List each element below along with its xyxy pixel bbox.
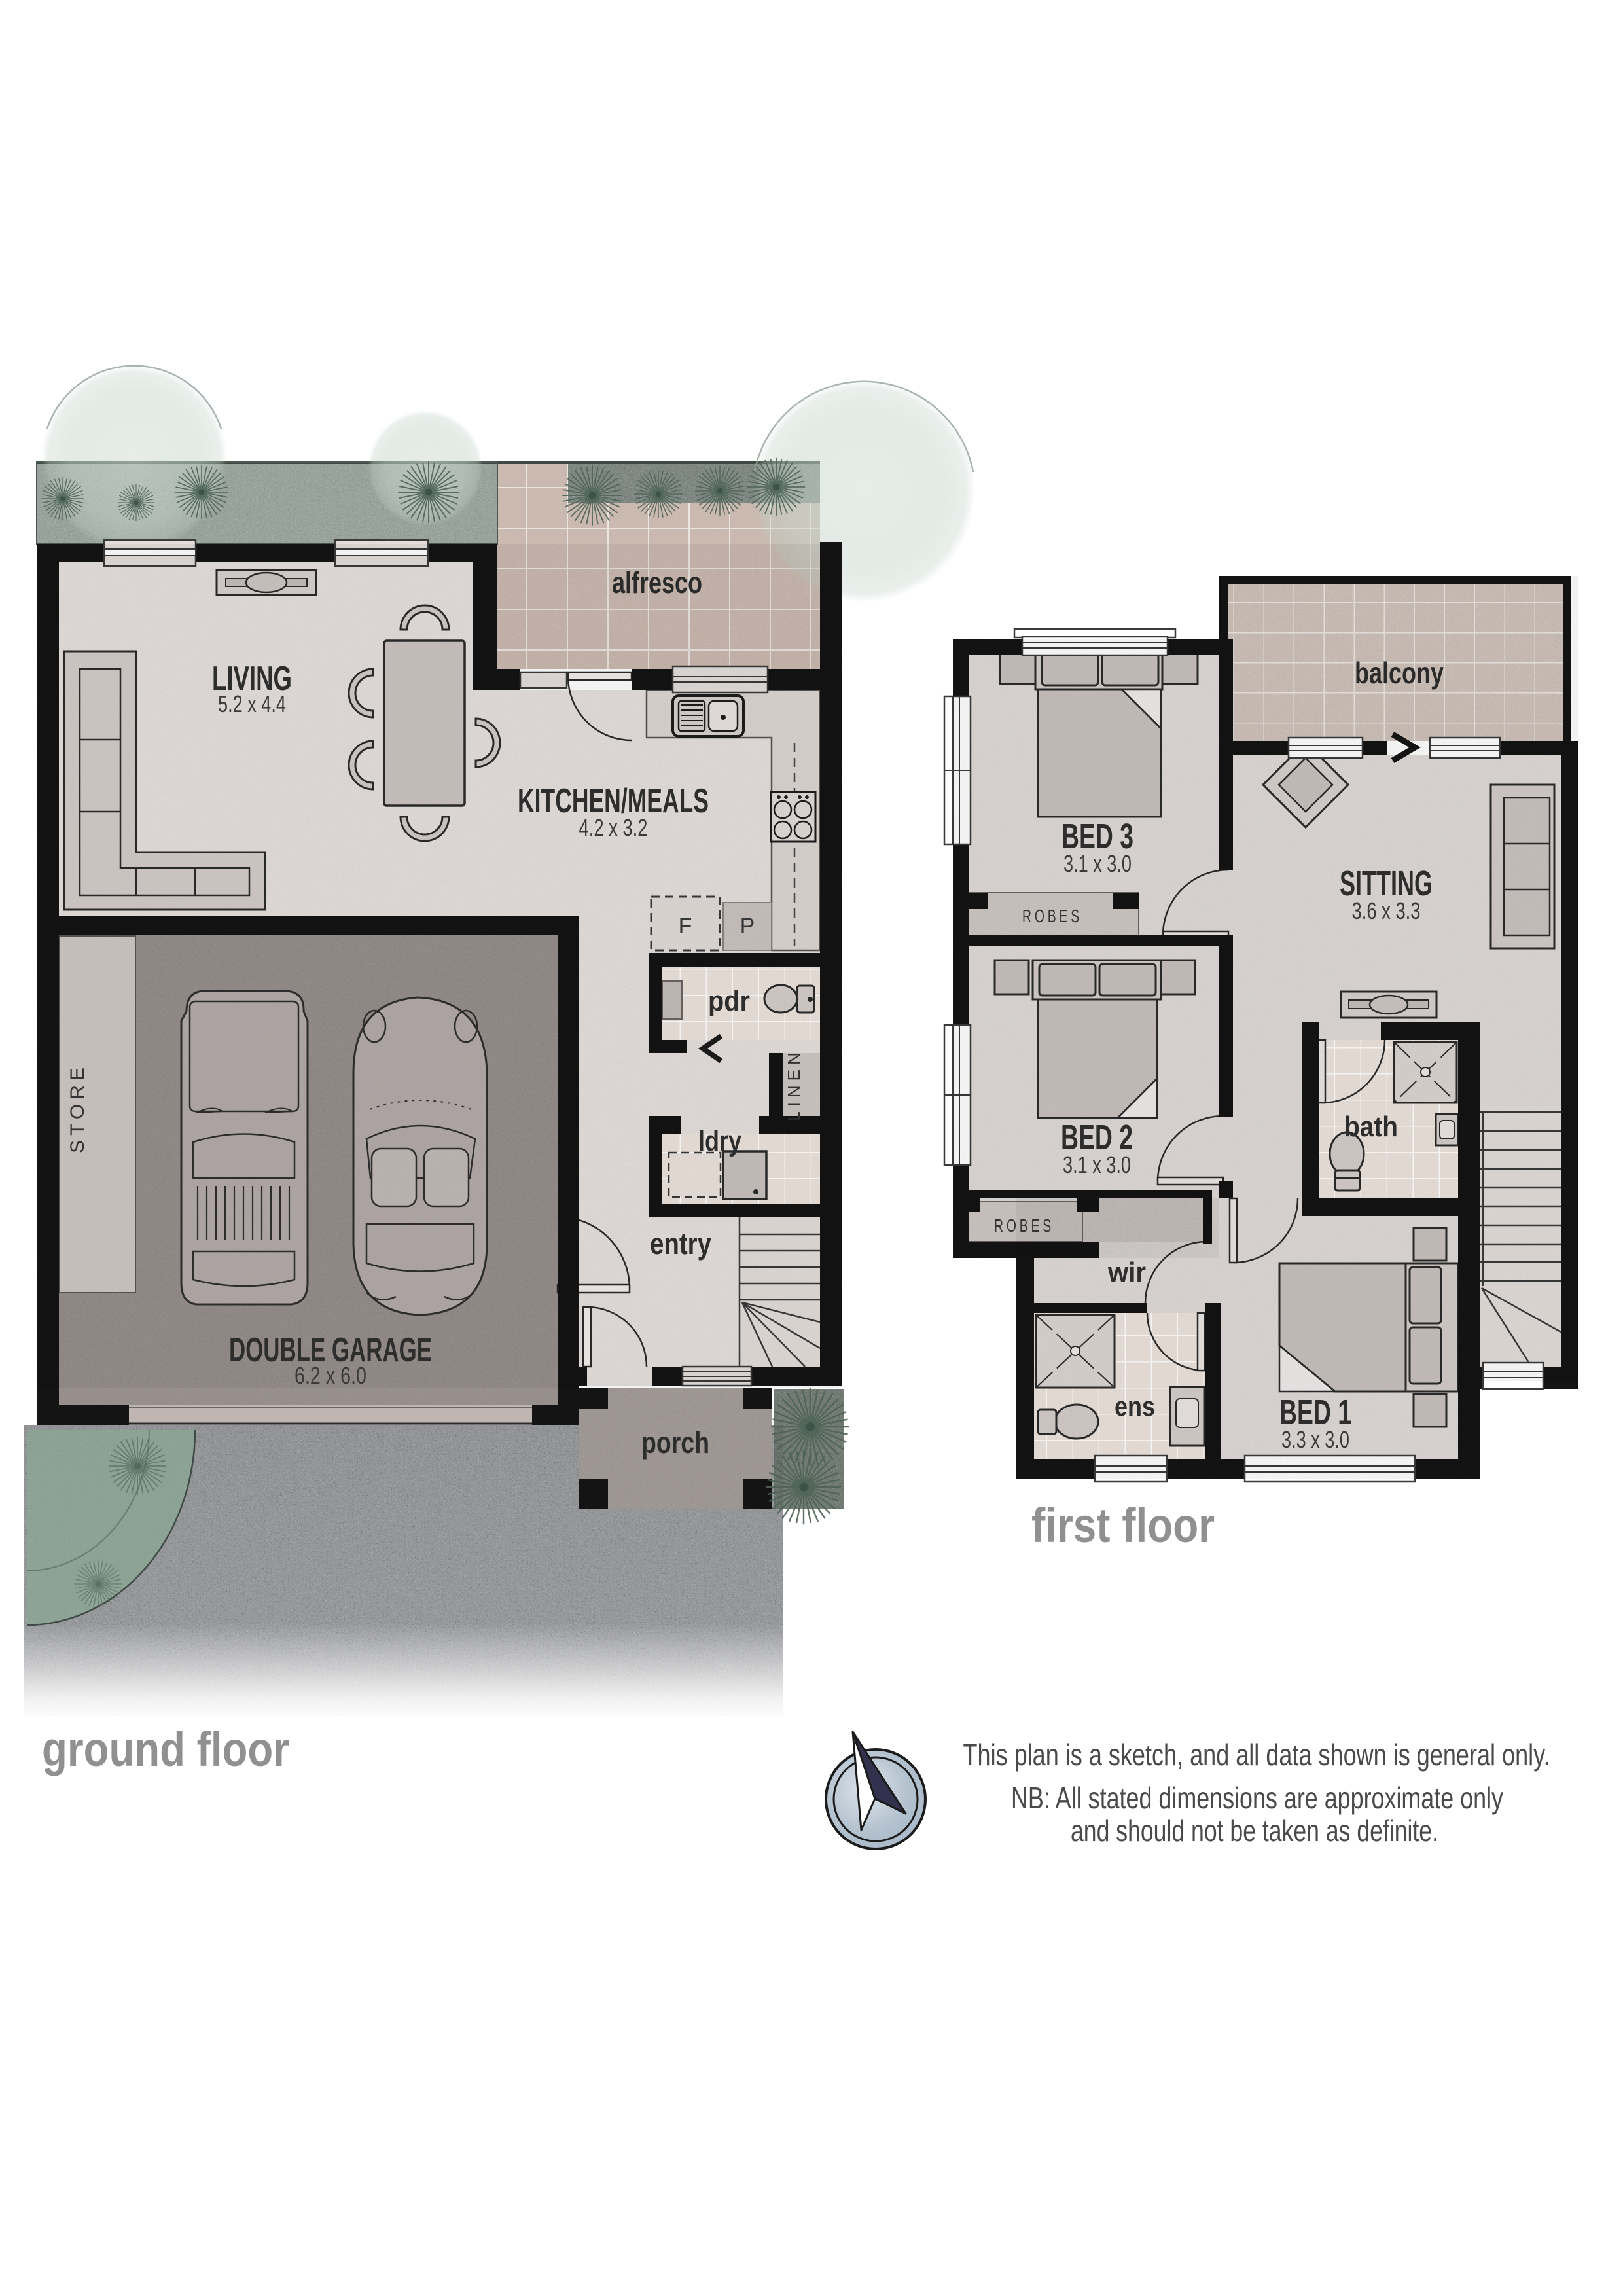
svg-text:ROBES: ROBES xyxy=(1022,906,1082,926)
svg-text:ROBES: ROBES xyxy=(994,1215,1054,1236)
svg-text:bath: bath xyxy=(1344,1111,1398,1143)
svg-text:6.2 x 6.0: 6.2 x 6.0 xyxy=(294,1362,366,1389)
svg-text:ldry: ldry xyxy=(698,1125,741,1157)
svg-text:3.1 x 3.0: 3.1 x 3.0 xyxy=(1063,850,1132,877)
svg-text:NB: All stated dimensions are: NB: All stated dimensions are approximat… xyxy=(1011,1781,1503,1815)
svg-text:This plan is a sketch, and all: This plan is a sketch, and all data show… xyxy=(963,1738,1550,1772)
svg-text:entry: entry xyxy=(650,1227,711,1261)
svg-text:5.2 x 4.4: 5.2 x 4.4 xyxy=(218,691,286,717)
svg-text:3.3 x 3.0: 3.3 x 3.0 xyxy=(1281,1426,1349,1453)
svg-text:LINEN: LINEN xyxy=(784,1048,804,1121)
svg-text:wir: wir xyxy=(1107,1257,1146,1287)
svg-text:ground floor: ground floor xyxy=(42,1722,289,1776)
svg-text:ens: ens xyxy=(1115,1391,1155,1422)
svg-text:first floor: first floor xyxy=(1031,1498,1215,1552)
svg-text:and should not be taken as def: and should not be taken as definite. xyxy=(1071,1814,1438,1848)
svg-text:3.6 x 3.3: 3.6 x 3.3 xyxy=(1352,897,1421,924)
svg-text:STORE: STORE xyxy=(67,1063,88,1153)
svg-text:porch: porch xyxy=(641,1426,709,1460)
svg-text:4.2 x 3.2: 4.2 x 3.2 xyxy=(579,814,648,841)
svg-text:3.1 x 3.0: 3.1 x 3.0 xyxy=(1063,1151,1131,1178)
